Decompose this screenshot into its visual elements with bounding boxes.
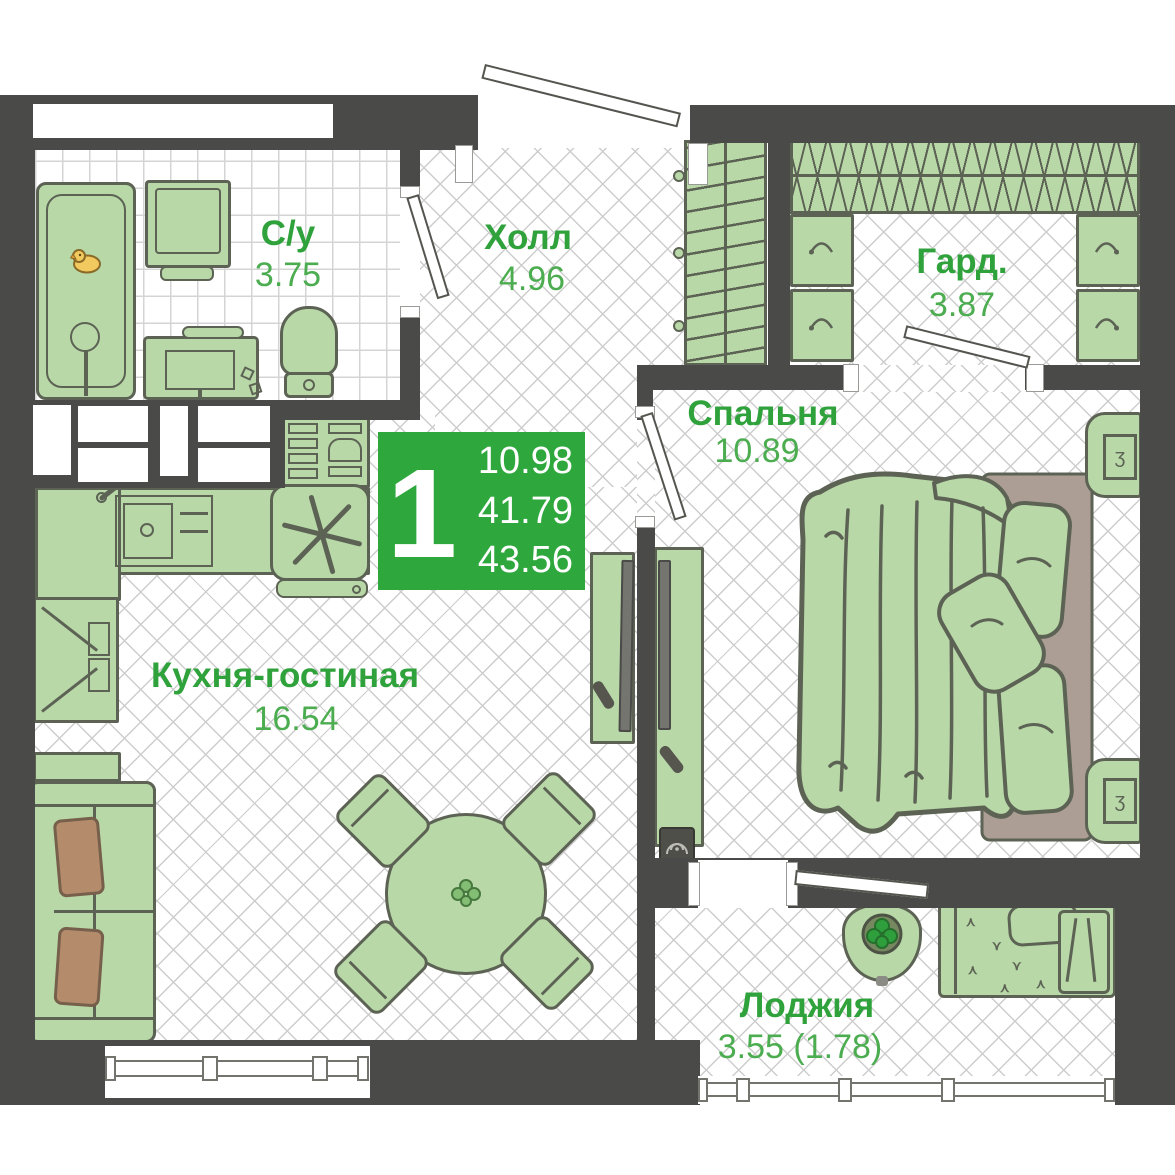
- table-plant-icon: [447, 874, 485, 912]
- kitchen-counter-side: [35, 487, 121, 601]
- coat-closet-rail: [724, 143, 727, 363]
- oven-handle: [352, 585, 361, 594]
- room-label-loggia: Лоджия: [740, 986, 874, 1026]
- wall: [690, 105, 1175, 143]
- door-jamb: [400, 306, 420, 318]
- bathtub-faucet: [84, 350, 88, 396]
- room-area-bedroom: 10.89: [714, 432, 799, 471]
- room-label-hall: Холл: [484, 218, 572, 258]
- cabinet-drawer: [88, 658, 110, 692]
- toilet-bowl: [280, 306, 338, 376]
- badge-living-area: 10.98: [478, 440, 573, 483]
- quilt-mark: ⋏: [1036, 976, 1046, 992]
- daybed-edge: [954, 906, 957, 994]
- badge-area-without-loggia: 41.79: [478, 490, 573, 533]
- window-mullion: [202, 1056, 218, 1081]
- sink-drain: [140, 523, 154, 537]
- wall: [1115, 858, 1175, 1105]
- window-mullion: [1104, 1078, 1115, 1102]
- wall: [1140, 105, 1175, 910]
- partition-wall: [637, 526, 655, 1040]
- room-area-loggia: 3.55 (1.78): [718, 1028, 882, 1067]
- quilt-mark: ⋎: [1012, 958, 1022, 974]
- sink-drainboard-line: [180, 530, 208, 533]
- entrance-door-leaf: [481, 64, 681, 127]
- double-bed: [786, 466, 1108, 848]
- quilt-mark: ⋏: [1000, 980, 1010, 996]
- room-area-hall: 4.96: [499, 260, 565, 299]
- loggia-glazing-frame: [702, 1082, 1111, 1097]
- quilt-mark: ⋎: [992, 938, 1002, 954]
- loggia-plant-icon: [860, 912, 904, 956]
- room-area-kitchen-living: 16.54: [253, 700, 338, 739]
- apartment-badge: 1 1 10.98 41.79 43.56: [378, 432, 585, 590]
- washing-machine-tray: [160, 266, 214, 281]
- cabinet-drawer: [88, 622, 110, 656]
- quilt-mark: ⋏: [968, 962, 978, 978]
- nightstand-decor: ʒ: [1103, 434, 1137, 480]
- sink-faucet-base: [96, 492, 107, 503]
- shaft: [78, 406, 148, 442]
- vanity-faucet: [198, 388, 202, 400]
- floor-plan: ʒ ʒ ⋏ ⋎ ⋏ ⋎ ⋏ ⋏: [0, 0, 1175, 1175]
- stove: [270, 484, 370, 581]
- sofa-seat-line: [54, 910, 154, 913]
- shaft: [198, 406, 270, 442]
- door-jamb: [635, 516, 655, 528]
- rubber-duck-icon: [70, 246, 102, 274]
- vanity-basin: [165, 350, 235, 390]
- window-mullion: [698, 1078, 708, 1102]
- toilet-button: [303, 379, 315, 391]
- sofa-pillow: [53, 816, 106, 898]
- room-label-kitchen-living: Кухня-гостиная: [151, 656, 419, 696]
- loggia-door-opening: [698, 860, 788, 908]
- wardrobe-door-gap-floor: [857, 365, 1027, 392]
- hanger-hook-icon: [1092, 232, 1122, 262]
- room-label-bedroom: Спальня: [687, 394, 838, 434]
- bathtub-drain: [70, 322, 100, 352]
- clothes-rail-rod: [792, 174, 1138, 177]
- shaft: [78, 448, 148, 482]
- window-mullion: [736, 1078, 750, 1102]
- rooms-count-display: 1: [378, 432, 466, 590]
- badge-total-area: 43.56: [478, 539, 573, 582]
- washing-machine-inner: [155, 188, 221, 254]
- desk-monitor: [658, 560, 671, 730]
- sofa-console: [33, 752, 121, 782]
- room-label-bathroom: С/у: [261, 214, 315, 254]
- clothes-rail: [790, 140, 1140, 214]
- plant-table-foot: [876, 976, 888, 986]
- door-jamb: [688, 862, 700, 906]
- cabinet-door: [328, 438, 362, 462]
- shaft: [33, 405, 71, 475]
- window-mullion: [941, 1078, 955, 1102]
- wall: [0, 95, 35, 1105]
- room-area-wardrobe: 3.87: [929, 286, 995, 325]
- door-jamb: [455, 145, 473, 183]
- cabinet-slat: [288, 423, 318, 434]
- wall: [637, 365, 857, 390]
- window-mullion: [357, 1056, 369, 1081]
- shaft: [198, 448, 270, 482]
- curtain-hook: [673, 247, 685, 259]
- window-mullion: [312, 1056, 328, 1081]
- cabinet-slat: [288, 438, 318, 449]
- hanger-hook-icon: [806, 308, 836, 338]
- cabinet-slat: [288, 468, 318, 479]
- sofa-armrest: [28, 781, 156, 807]
- cabinet-slat: [328, 466, 362, 477]
- shaft: [160, 406, 188, 476]
- bathroom-window: [33, 104, 333, 138]
- hanger-hook-icon: [806, 232, 836, 262]
- window-mullion: [838, 1078, 852, 1102]
- curtain-hook: [673, 320, 685, 332]
- cabinet-slat: [328, 423, 362, 434]
- door-jamb: [688, 143, 708, 185]
- door-jamb: [843, 364, 859, 392]
- wall: [768, 140, 790, 367]
- curtain-hook: [673, 170, 685, 182]
- sofa-pillow: [53, 926, 104, 1007]
- room-area-bathroom: 3.75: [255, 256, 321, 295]
- window-mullion: [105, 1056, 116, 1081]
- cabinet-slat: [288, 453, 318, 464]
- quilt-mark: ⋏: [966, 914, 976, 930]
- nightstand-decor: ʒ: [1103, 778, 1137, 824]
- hanger-hook-icon: [1092, 308, 1122, 338]
- room-label-wardrobe: Гард.: [916, 242, 1007, 282]
- towel: [182, 326, 244, 339]
- sink-drainboard-line: [180, 512, 208, 515]
- door-jamb: [1026, 364, 1044, 392]
